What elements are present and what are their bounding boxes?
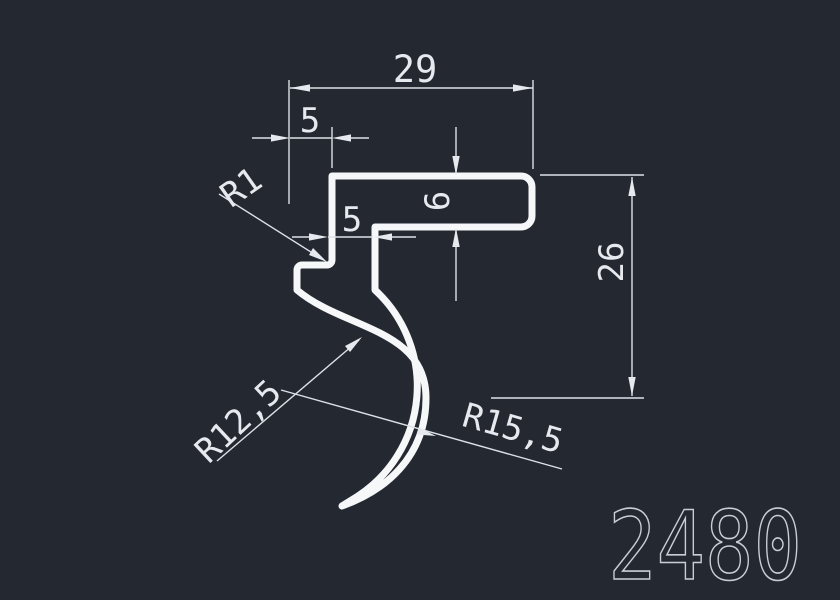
r125-label: R12,5 bbox=[188, 372, 290, 471]
r1-label: R1 bbox=[213, 160, 269, 216]
r1-arrow bbox=[309, 248, 327, 262]
part-number: 2480 bbox=[608, 492, 802, 600]
dim-5low-label: 5 bbox=[342, 200, 362, 240]
dim-26-arrow-bottom bbox=[628, 377, 635, 396]
dim-top-width: 29 bbox=[289, 48, 533, 204]
dim-5low-arrow-left bbox=[309, 233, 328, 240]
dim-5top-arrow-left bbox=[271, 134, 290, 141]
dim-5top-label: 5 bbox=[300, 101, 320, 141]
dim-5top-arrow-right bbox=[332, 134, 351, 141]
profile-outline bbox=[297, 176, 532, 506]
dim-29-arrow-right bbox=[513, 84, 533, 91]
dim-6-arrow-bottom bbox=[452, 228, 459, 247]
dim-overall-height: 26 bbox=[491, 175, 644, 398]
dim-step-width: 5 bbox=[292, 200, 416, 241]
dim-6-arrow-top bbox=[452, 156, 459, 175]
dim-bar-thickness: 6 bbox=[418, 127, 460, 301]
dim-26-arrow-top bbox=[628, 177, 635, 196]
dim-hook-overhang: 5 bbox=[252, 101, 369, 168]
cad-canvas: 29 5 6 5 bbox=[0, 0, 840, 600]
cad-drawing: 29 5 6 5 bbox=[0, 0, 840, 600]
profile bbox=[297, 176, 532, 506]
dim-6-label: 6 bbox=[418, 191, 458, 211]
dim-inner-radius: R12,5 bbox=[188, 337, 362, 471]
r155-label: R15,5 bbox=[458, 396, 567, 463]
dim-29-label: 29 bbox=[393, 48, 438, 91]
dim-fillet-radius: R1 bbox=[213, 160, 327, 262]
dim-29-arrow-left bbox=[290, 84, 310, 91]
dim-26-label: 26 bbox=[592, 242, 632, 283]
part-number-text: 2480 bbox=[608, 492, 802, 600]
